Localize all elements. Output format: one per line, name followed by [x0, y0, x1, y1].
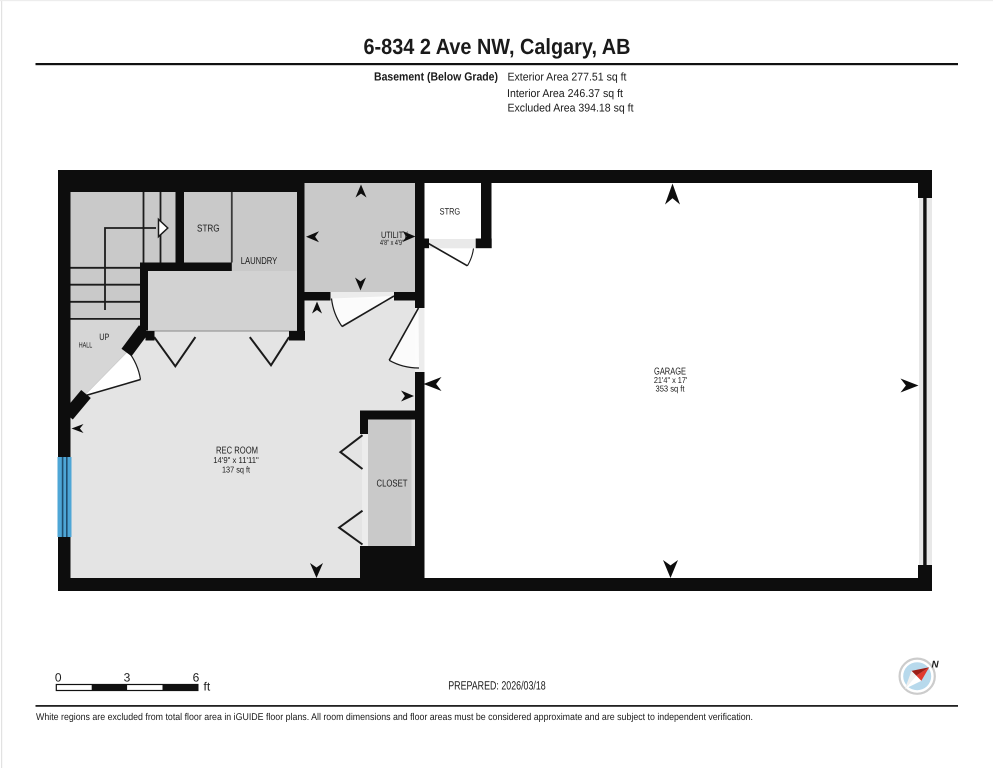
svg-text:ft: ft [204, 679, 211, 693]
svg-text:6: 6 [193, 671, 200, 685]
svg-text:LAUNDRY: LAUNDRY [241, 256, 278, 267]
svg-text:STRG: STRG [440, 206, 461, 216]
svg-text:N: N [932, 659, 940, 670]
svg-text:Interior Area 246.37 sq ft: Interior Area 246.37 sq ft [507, 88, 624, 100]
svg-text:STRG: STRG [197, 224, 220, 235]
svg-text:4'8" x 4'9": 4'8" x 4'9" [380, 238, 404, 247]
svg-text:CLOSET: CLOSET [377, 478, 408, 489]
svg-text:3: 3 [124, 671, 131, 685]
svg-text:137 sq ft: 137 sq ft [222, 465, 251, 475]
svg-text:Basement (Below Grade): Basement (Below Grade) [374, 69, 498, 83]
svg-text:Excluded Area 394.18 sq ft: Excluded Area 394.18 sq ft [508, 103, 635, 115]
svg-text:White regions are excluded fro: White regions are excluded from total fl… [36, 712, 753, 723]
svg-text:353 sq ft: 353 sq ft [656, 384, 686, 394]
svg-text:HALL: HALL [79, 340, 93, 349]
svg-text:Exterior Area 277.51 sq ft: Exterior Area 277.51 sq ft [508, 71, 628, 83]
svg-text:UP: UP [99, 332, 109, 342]
svg-text:0: 0 [55, 671, 62, 685]
svg-text:6-834 2 Ave NW, Calgary, AB: 6-834 2 Ave NW, Calgary, AB [364, 34, 631, 59]
svg-text:PREPARED: 2026/03/18: PREPARED: 2026/03/18 [448, 679, 546, 693]
